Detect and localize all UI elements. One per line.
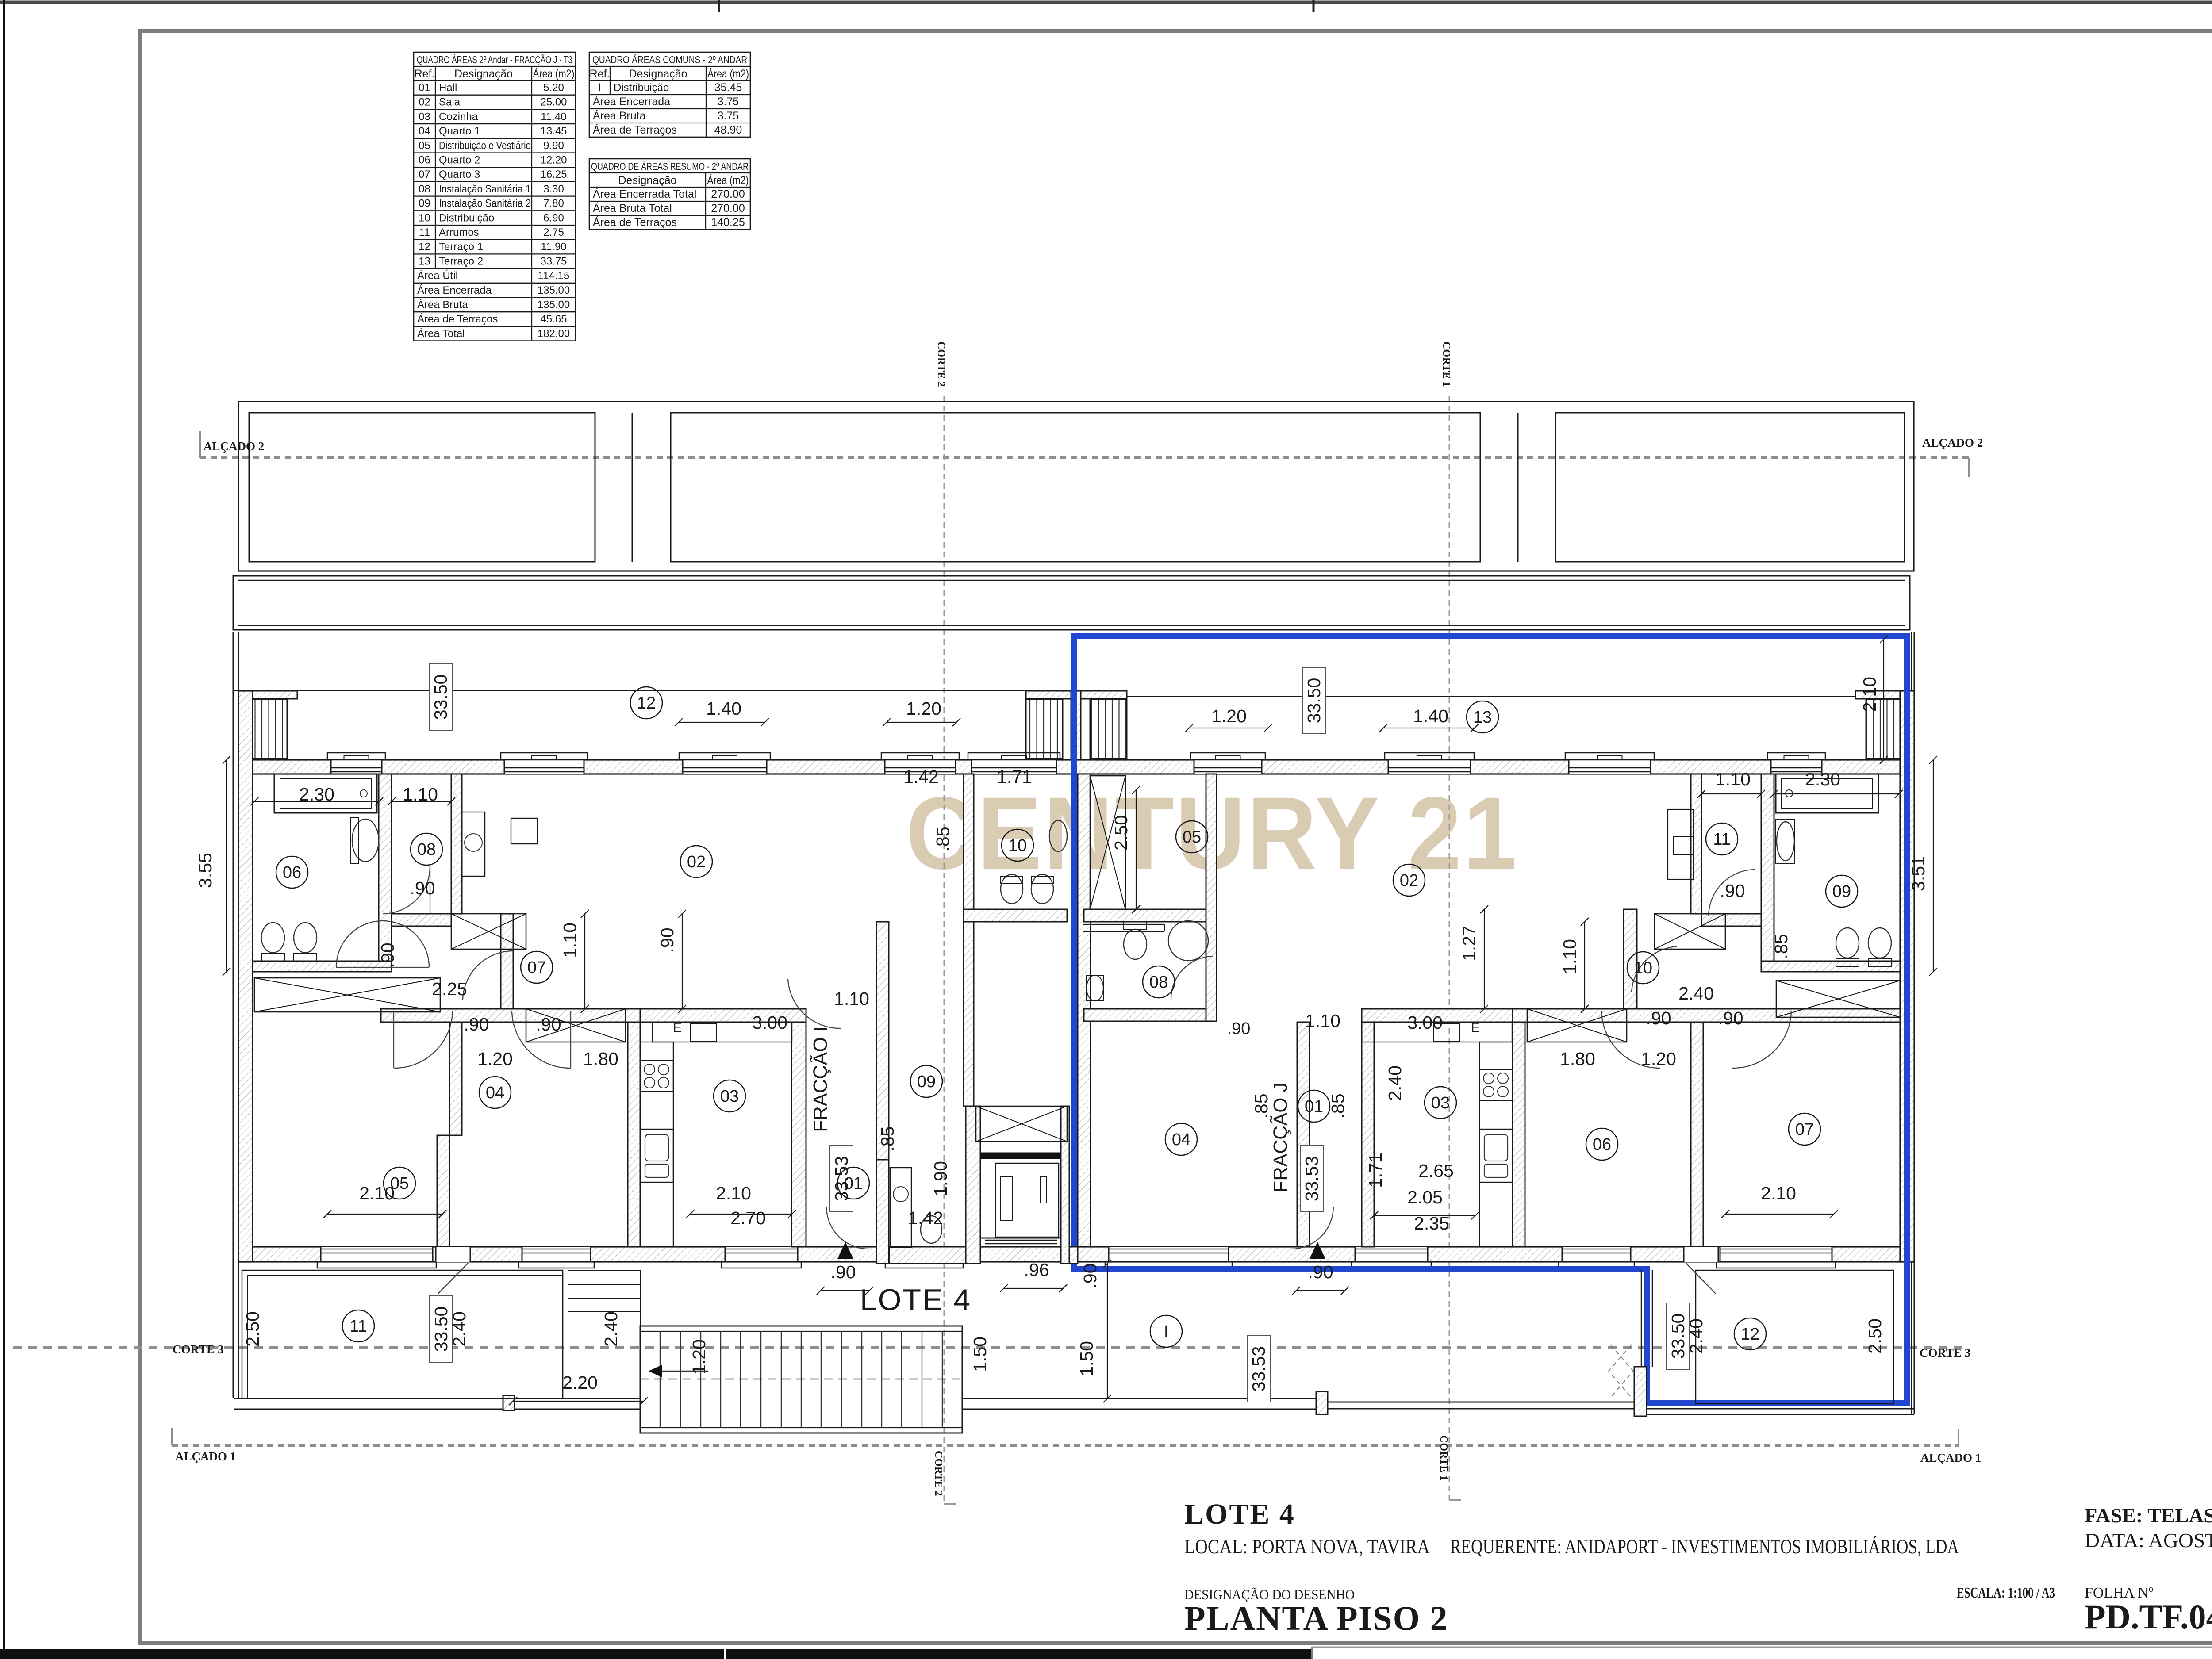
- svg-text:Designação: Designação: [629, 68, 687, 80]
- svg-text:1.40: 1.40: [706, 698, 741, 719]
- svg-text:11: 11: [1713, 830, 1730, 849]
- svg-text:2.30: 2.30: [1805, 769, 1840, 789]
- svg-text:06: 06: [283, 863, 301, 882]
- svg-text:Área de Terraços: Área de Terraços: [593, 123, 677, 136]
- svg-text:1.10: 1.10: [560, 923, 580, 958]
- svg-text:Arrumos: Arrumos: [439, 226, 479, 238]
- svg-text:CORTE 3: CORTE 3: [1920, 1346, 1970, 1360]
- svg-text:ALÇADO 2: ALÇADO 2: [204, 440, 264, 453]
- svg-text:05: 05: [1183, 828, 1201, 847]
- svg-text:.85: .85: [877, 1126, 898, 1152]
- svg-text:1.20: 1.20: [1641, 1049, 1676, 1069]
- svg-text:Quarto 3: Quarto 3: [439, 169, 480, 180]
- svg-text:135.00: 135.00: [538, 299, 570, 311]
- svg-text:33.50: 33.50: [430, 674, 451, 720]
- svg-text:13: 13: [419, 255, 430, 267]
- svg-text:1.42: 1.42: [903, 766, 939, 787]
- svg-text:3.75: 3.75: [718, 96, 739, 108]
- svg-text:270.00: 270.00: [711, 202, 745, 215]
- svg-text:.90: .90: [1718, 1008, 1743, 1028]
- svg-text:33.53: 33.53: [1248, 1346, 1269, 1392]
- svg-text:Designação: Designação: [454, 68, 513, 80]
- svg-text:REQUERENTE: ANIDAPORT - INVEST: REQUERENTE: ANIDAPORT - INVESTIMENTOS IM…: [1450, 1535, 1959, 1558]
- svg-text:.90: .90: [1308, 1262, 1333, 1282]
- svg-text:33.50: 33.50: [1668, 1314, 1688, 1359]
- svg-text:Terraço 2: Terraço 2: [439, 255, 483, 267]
- svg-text:1.20: 1.20: [477, 1049, 513, 1069]
- svg-text:ESCALA: 1:100 / A3: ESCALA: 1:100 / A3: [1957, 1585, 2055, 1601]
- svg-text:FRACÇÃO J: FRACÇÃO J: [1269, 1082, 1291, 1192]
- svg-text:Área Útil: Área Útil: [417, 270, 458, 282]
- svg-text:.85: .85: [1328, 1094, 1348, 1119]
- svg-text:.85: .85: [933, 827, 953, 852]
- svg-text:QUADRO ÁREAS 2º Andar - FRACÇÃ: QUADRO ÁREAS 2º Andar - FRACÇÃO J - T3: [417, 54, 572, 65]
- svg-text:.90: .90: [1646, 1008, 1671, 1028]
- svg-text:2.50: 2.50: [242, 1311, 263, 1347]
- svg-text:08: 08: [1149, 973, 1168, 992]
- svg-text:01: 01: [419, 82, 430, 94]
- svg-text:25.00: 25.00: [540, 96, 567, 108]
- svg-text:10: 10: [1008, 836, 1027, 855]
- svg-text:Distribuição: Distribuição: [614, 82, 669, 94]
- svg-text:11: 11: [349, 1317, 367, 1336]
- svg-text:.90: .90: [377, 943, 398, 968]
- svg-text:07: 07: [1795, 1120, 1814, 1139]
- svg-text:E: E: [1471, 1020, 1480, 1035]
- svg-text:182.00: 182.00: [538, 328, 570, 340]
- svg-text:06: 06: [419, 154, 430, 166]
- svg-text:2.10: 2.10: [1761, 1183, 1796, 1203]
- svg-text:1.71: 1.71: [997, 766, 1032, 787]
- svg-text:5.20: 5.20: [543, 82, 564, 94]
- svg-text:Terraço 1: Terraço 1: [439, 241, 483, 253]
- svg-text:35.45: 35.45: [714, 81, 742, 94]
- svg-text:.90: .90: [410, 878, 435, 898]
- svg-text:.90: .90: [464, 1014, 489, 1034]
- svg-text:2.40: 2.40: [1678, 983, 1714, 1004]
- svg-text:Área Total: Área Total: [417, 328, 465, 340]
- svg-text:DATA: AGOSTO 2022: DATA: AGOSTO 2022: [2085, 1529, 2212, 1552]
- svg-text:CORTE 1: CORTE 1: [1438, 1435, 1449, 1481]
- svg-text:01: 01: [1305, 1097, 1323, 1116]
- svg-text:.90: .90: [1080, 1264, 1100, 1289]
- svg-text:Área de Terraços: Área de Terraços: [417, 313, 498, 325]
- svg-text:Quarto 2: Quarto 2: [439, 154, 480, 166]
- svg-text:FASE: TELAS FINAIS: FASE: TELAS FINAIS: [2085, 1504, 2212, 1527]
- svg-text:LOTE 4: LOTE 4: [1184, 1498, 1295, 1530]
- svg-text:Área Encerrada: Área Encerrada: [417, 284, 492, 296]
- svg-text:2.75: 2.75: [543, 226, 564, 238]
- svg-text:2.40: 2.40: [601, 1311, 621, 1347]
- svg-text:1.42: 1.42: [908, 1208, 943, 1228]
- svg-text:FRACÇÃO I: FRACÇÃO I: [809, 1026, 831, 1132]
- svg-text:08: 08: [419, 183, 430, 195]
- svg-text:Ref.: Ref.: [590, 68, 610, 80]
- svg-text:.85: .85: [1771, 934, 1791, 959]
- svg-text:QUADRO ÁREAS COMUNS - 2º ANDAR: QUADRO ÁREAS COMUNS - 2º ANDAR: [592, 54, 747, 65]
- svg-text:2.40: 2.40: [1385, 1065, 1405, 1101]
- svg-text:Designação: Designação: [618, 174, 676, 187]
- svg-text:3.75: 3.75: [718, 110, 739, 122]
- svg-text:02: 02: [419, 96, 430, 108]
- svg-text:33.75: 33.75: [540, 255, 567, 267]
- svg-text:08: 08: [417, 840, 436, 859]
- svg-text:CORTE 2: CORTE 2: [933, 1451, 944, 1496]
- svg-text:1.20: 1.20: [1211, 706, 1247, 726]
- svg-text:E: E: [673, 1020, 682, 1035]
- svg-text:CORTE 2: CORTE 2: [935, 341, 947, 387]
- svg-text:I: I: [598, 81, 601, 94]
- svg-text:1.20: 1.20: [689, 1339, 709, 1375]
- svg-text:07: 07: [419, 169, 430, 180]
- svg-text:2.50: 2.50: [1111, 815, 1131, 851]
- svg-text:.90: .90: [536, 1014, 561, 1034]
- svg-text:33.50: 33.50: [431, 1307, 451, 1352]
- svg-text:.90: .90: [657, 928, 677, 953]
- svg-text:135.00: 135.00: [538, 284, 570, 296]
- svg-text:11.40: 11.40: [541, 111, 566, 123]
- svg-text:2.25: 2.25: [432, 979, 467, 999]
- svg-text:2.40: 2.40: [1686, 1318, 1706, 1354]
- svg-text:33.50: 33.50: [1304, 678, 1324, 724]
- svg-text:Sala: Sala: [439, 96, 461, 108]
- svg-text:11.90: 11.90: [541, 241, 566, 253]
- svg-text:06: 06: [1593, 1135, 1611, 1154]
- svg-text:04: 04: [419, 125, 430, 137]
- svg-text:1.10: 1.10: [1559, 939, 1580, 974]
- svg-text:Área Encerrada: Área Encerrada: [593, 95, 670, 108]
- svg-text:12: 12: [637, 694, 656, 713]
- svg-text:9.90: 9.90: [543, 140, 564, 152]
- svg-text:1.10: 1.10: [834, 989, 869, 1009]
- svg-text:140.25: 140.25: [711, 216, 745, 229]
- svg-text:PD.TF.04: PD.TF.04: [2085, 1598, 2212, 1636]
- svg-text:2.65: 2.65: [1418, 1161, 1454, 1181]
- svg-text:1.40: 1.40: [1413, 706, 1448, 726]
- svg-text:6.90: 6.90: [543, 212, 564, 224]
- svg-text:2.10: 2.10: [716, 1183, 751, 1203]
- svg-text:33.53: 33.53: [1302, 1156, 1322, 1202]
- svg-text:2.35: 2.35: [1414, 1213, 1449, 1234]
- svg-text:Hall: Hall: [439, 82, 457, 94]
- svg-text:2.20: 2.20: [562, 1372, 598, 1393]
- svg-text:CORTE 1: CORTE 1: [1440, 341, 1452, 387]
- svg-text:2.40: 2.40: [449, 1311, 469, 1347]
- svg-text:1.80: 1.80: [1560, 1049, 1595, 1069]
- svg-text:7.80: 7.80: [543, 198, 564, 210]
- svg-text:2.10: 2.10: [1859, 677, 1880, 712]
- svg-text:13.45: 13.45: [540, 125, 567, 137]
- svg-text:Quarto 1: Quarto 1: [439, 125, 480, 137]
- svg-text:48.90: 48.90: [714, 124, 742, 136]
- svg-text:Área de Terraços: Área de Terraços: [593, 216, 677, 229]
- svg-text:Área Bruta: Área Bruta: [593, 109, 646, 122]
- svg-text:.90: .90: [1720, 881, 1745, 901]
- svg-text:.96: .96: [1024, 1260, 1049, 1280]
- svg-text:1.90: 1.90: [930, 1161, 951, 1196]
- svg-text:09: 09: [419, 198, 430, 210]
- svg-text:2.05: 2.05: [1407, 1187, 1443, 1207]
- svg-text:.90: .90: [1227, 1019, 1251, 1038]
- svg-text:QUADRO DE ÁREAS RESUMO - 2º AN: QUADRO DE ÁREAS RESUMO - 2º ANDAR: [591, 161, 749, 172]
- svg-text:Instalação Sanitária 2: Instalação Sanitária 2: [439, 198, 531, 210]
- svg-text:Área Bruta Total: Área Bruta Total: [593, 202, 672, 215]
- svg-text:270.00: 270.00: [711, 188, 745, 200]
- svg-text:13: 13: [1473, 708, 1492, 727]
- svg-text:11: 11: [419, 226, 430, 238]
- svg-text:ALÇADO 1: ALÇADO 1: [1920, 1451, 1981, 1464]
- svg-text:Distribuição e Vestiário: Distribuição e Vestiário: [439, 140, 531, 152]
- svg-text:Área (m2): Área (m2): [707, 174, 749, 187]
- svg-text:3.30: 3.30: [543, 183, 564, 195]
- svg-text:2.70: 2.70: [730, 1208, 766, 1228]
- svg-text:09: 09: [1832, 882, 1851, 901]
- svg-text:.90: .90: [831, 1262, 856, 1282]
- svg-text:LOCAL: PORTA NOVA, TAVIRA: LOCAL: PORTA NOVA, TAVIRA: [1184, 1535, 1430, 1558]
- svg-text:3.51: 3.51: [1908, 856, 1928, 891]
- svg-text:3.00: 3.00: [1407, 1012, 1443, 1033]
- svg-text:12: 12: [1741, 1325, 1759, 1344]
- svg-text:1.50: 1.50: [1076, 1341, 1097, 1376]
- svg-text:16.25: 16.25: [540, 169, 567, 180]
- svg-text:Área Bruta: Área Bruta: [417, 299, 468, 311]
- svg-text:LOTE 4: LOTE 4: [860, 1283, 972, 1317]
- svg-text:09: 09: [917, 1073, 936, 1091]
- svg-text:02: 02: [687, 853, 706, 871]
- svg-text:114.15: 114.15: [538, 270, 570, 282]
- svg-text:03: 03: [419, 111, 430, 123]
- svg-text:Área (m2): Área (m2): [533, 67, 575, 80]
- svg-text:1.20: 1.20: [906, 698, 941, 719]
- svg-text:10: 10: [419, 212, 430, 224]
- svg-text:Instalação Sanitária 1: Instalação Sanitária 1: [439, 183, 531, 195]
- svg-text:Distribuição: Distribuição: [439, 212, 494, 224]
- svg-text:Área Encerrada Total: Área Encerrada Total: [593, 188, 696, 200]
- svg-text:05: 05: [419, 140, 430, 152]
- svg-text:03: 03: [1431, 1094, 1450, 1112]
- svg-text:1.71: 1.71: [1365, 1153, 1386, 1188]
- svg-text:12.20: 12.20: [540, 154, 567, 166]
- svg-text:Cozinha: Cozinha: [439, 111, 478, 123]
- svg-text:2.50: 2.50: [1865, 1318, 1885, 1354]
- svg-text:1.10: 1.10: [1715, 769, 1751, 789]
- svg-text:CORTE 3: CORTE 3: [173, 1343, 223, 1356]
- svg-text:04: 04: [486, 1084, 504, 1102]
- svg-text:1.27: 1.27: [1459, 926, 1479, 961]
- svg-text:ALÇADO 1: ALÇADO 1: [175, 1450, 236, 1463]
- svg-text:ALÇADO 2: ALÇADO 2: [1922, 436, 1983, 449]
- svg-text:1.50: 1.50: [970, 1337, 990, 1372]
- svg-text:03: 03: [720, 1087, 739, 1106]
- svg-text:10: 10: [1634, 959, 1652, 977]
- svg-text:3.00: 3.00: [752, 1012, 787, 1033]
- svg-text:12: 12: [419, 241, 430, 253]
- svg-text:1.80: 1.80: [583, 1049, 618, 1069]
- svg-text:01: 01: [844, 1174, 863, 1193]
- svg-text:PLANTA PISO 2: PLANTA PISO 2: [1184, 1599, 1448, 1637]
- svg-text:02: 02: [1400, 871, 1418, 890]
- svg-text:1.10: 1.10: [1305, 1011, 1340, 1031]
- svg-text:3.55: 3.55: [195, 853, 215, 888]
- svg-text:04: 04: [1172, 1130, 1190, 1149]
- svg-text:.85: .85: [1251, 1094, 1271, 1119]
- svg-text:45.65: 45.65: [540, 313, 567, 325]
- svg-text:07: 07: [527, 958, 546, 977]
- svg-text:I: I: [1164, 1322, 1169, 1341]
- svg-text:Área (m2): Área (m2): [707, 67, 749, 80]
- svg-text:Ref.: Ref.: [415, 68, 435, 80]
- svg-text:2.10: 2.10: [359, 1183, 395, 1203]
